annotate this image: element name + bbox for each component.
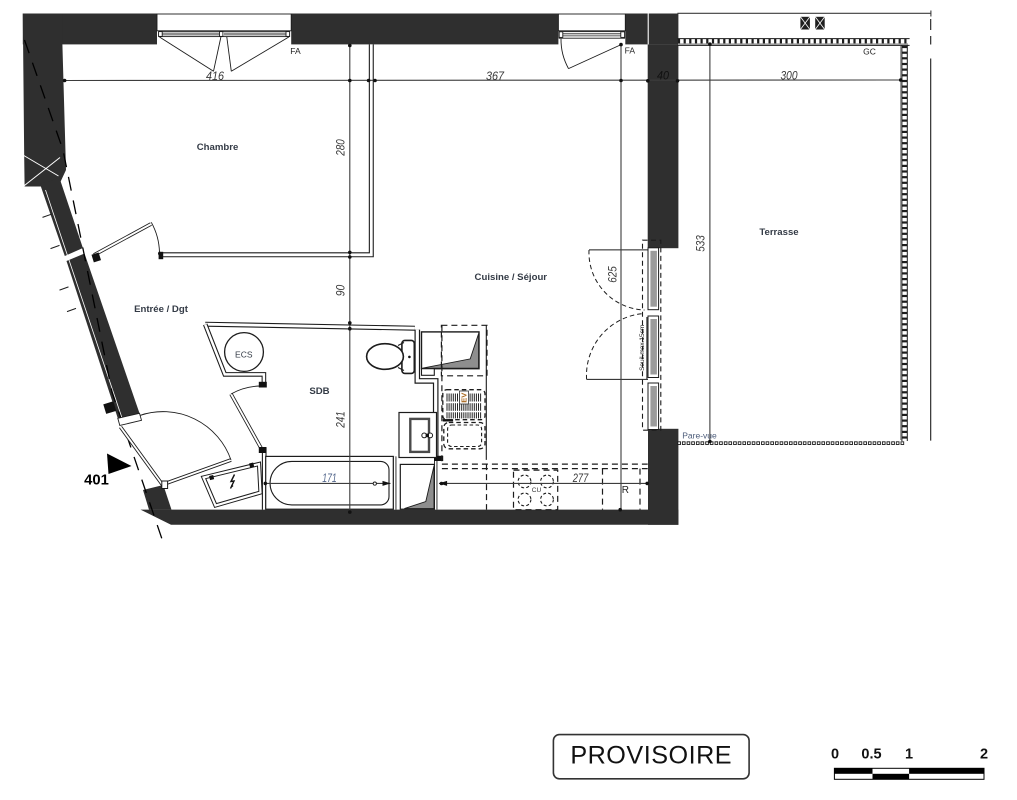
svg-text:1: 1: [905, 747, 913, 763]
svg-text:277: 277: [572, 471, 589, 485]
svg-text:401: 401: [84, 472, 109, 488]
svg-text:416: 416: [206, 69, 224, 83]
svg-text:PROVISOIRE: PROVISOIRE: [570, 742, 732, 770]
svg-text:CU: CU: [532, 487, 542, 494]
svg-text:Entrée / Dgt: Entrée / Dgt: [134, 304, 189, 315]
svg-text:0: 0: [831, 747, 839, 763]
svg-text:FA: FA: [290, 46, 301, 56]
svg-text:367: 367: [486, 69, 505, 83]
svg-text:R: R: [622, 485, 629, 496]
svg-text:Chambre: Chambre: [197, 142, 239, 153]
svg-text:300: 300: [781, 68, 798, 82]
svg-text:Terrasse: Terrasse: [759, 227, 798, 238]
svg-text:0.5: 0.5: [861, 747, 881, 763]
svg-text:EV: EV: [460, 393, 469, 403]
svg-text:FA: FA: [625, 46, 636, 56]
svg-text:Pare-vue: Pare-vue: [682, 431, 717, 441]
svg-text:2: 2: [980, 747, 988, 763]
svg-text:90: 90: [334, 284, 348, 296]
svg-text:Cuisine / Séjour: Cuisine / Séjour: [475, 272, 548, 283]
svg-text:625: 625: [606, 266, 620, 283]
svg-text:171: 171: [322, 471, 337, 485]
svg-text:SDB: SDB: [309, 386, 329, 397]
svg-text:GC: GC: [863, 47, 876, 57]
svg-text:241: 241: [334, 411, 348, 428]
svg-text:ECS: ECS: [235, 350, 253, 360]
svg-text:Seuil.max.15cm: Seuil.max.15cm: [639, 325, 646, 371]
svg-text:280: 280: [334, 139, 348, 157]
svg-text:533: 533: [694, 235, 708, 252]
svg-text:40: 40: [657, 69, 669, 83]
